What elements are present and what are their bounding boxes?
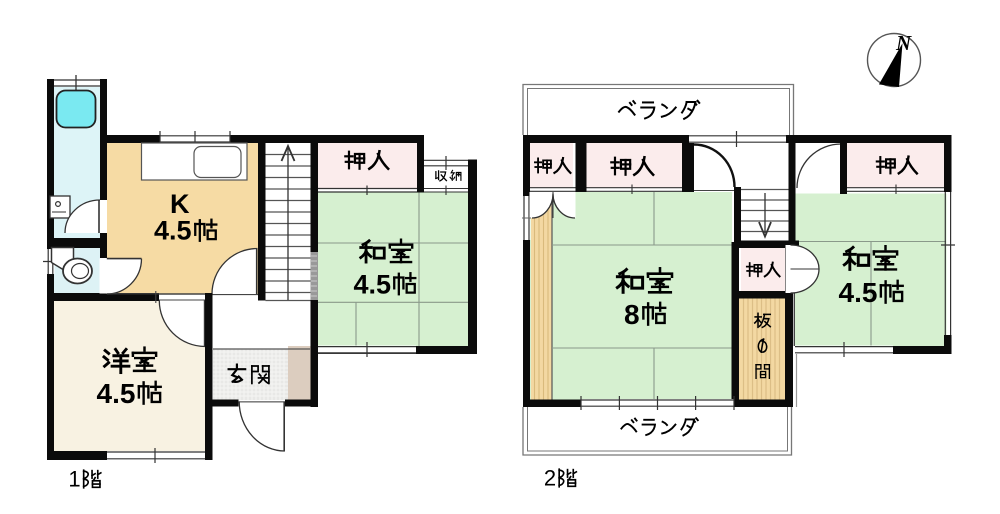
svg-text:K: K (170, 189, 190, 219)
svg-text:2: 2 (544, 466, 556, 491)
svg-text:4.5: 4.5 (154, 216, 192, 246)
svg-text:4.5: 4.5 (97, 378, 136, 409)
svg-text:4.5: 4.5 (354, 270, 392, 300)
svg-text:8: 8 (624, 299, 640, 330)
svg-text:4.5: 4.5 (839, 277, 878, 308)
svg-text:1: 1 (68, 467, 80, 492)
svg-text:N: N (895, 31, 912, 55)
